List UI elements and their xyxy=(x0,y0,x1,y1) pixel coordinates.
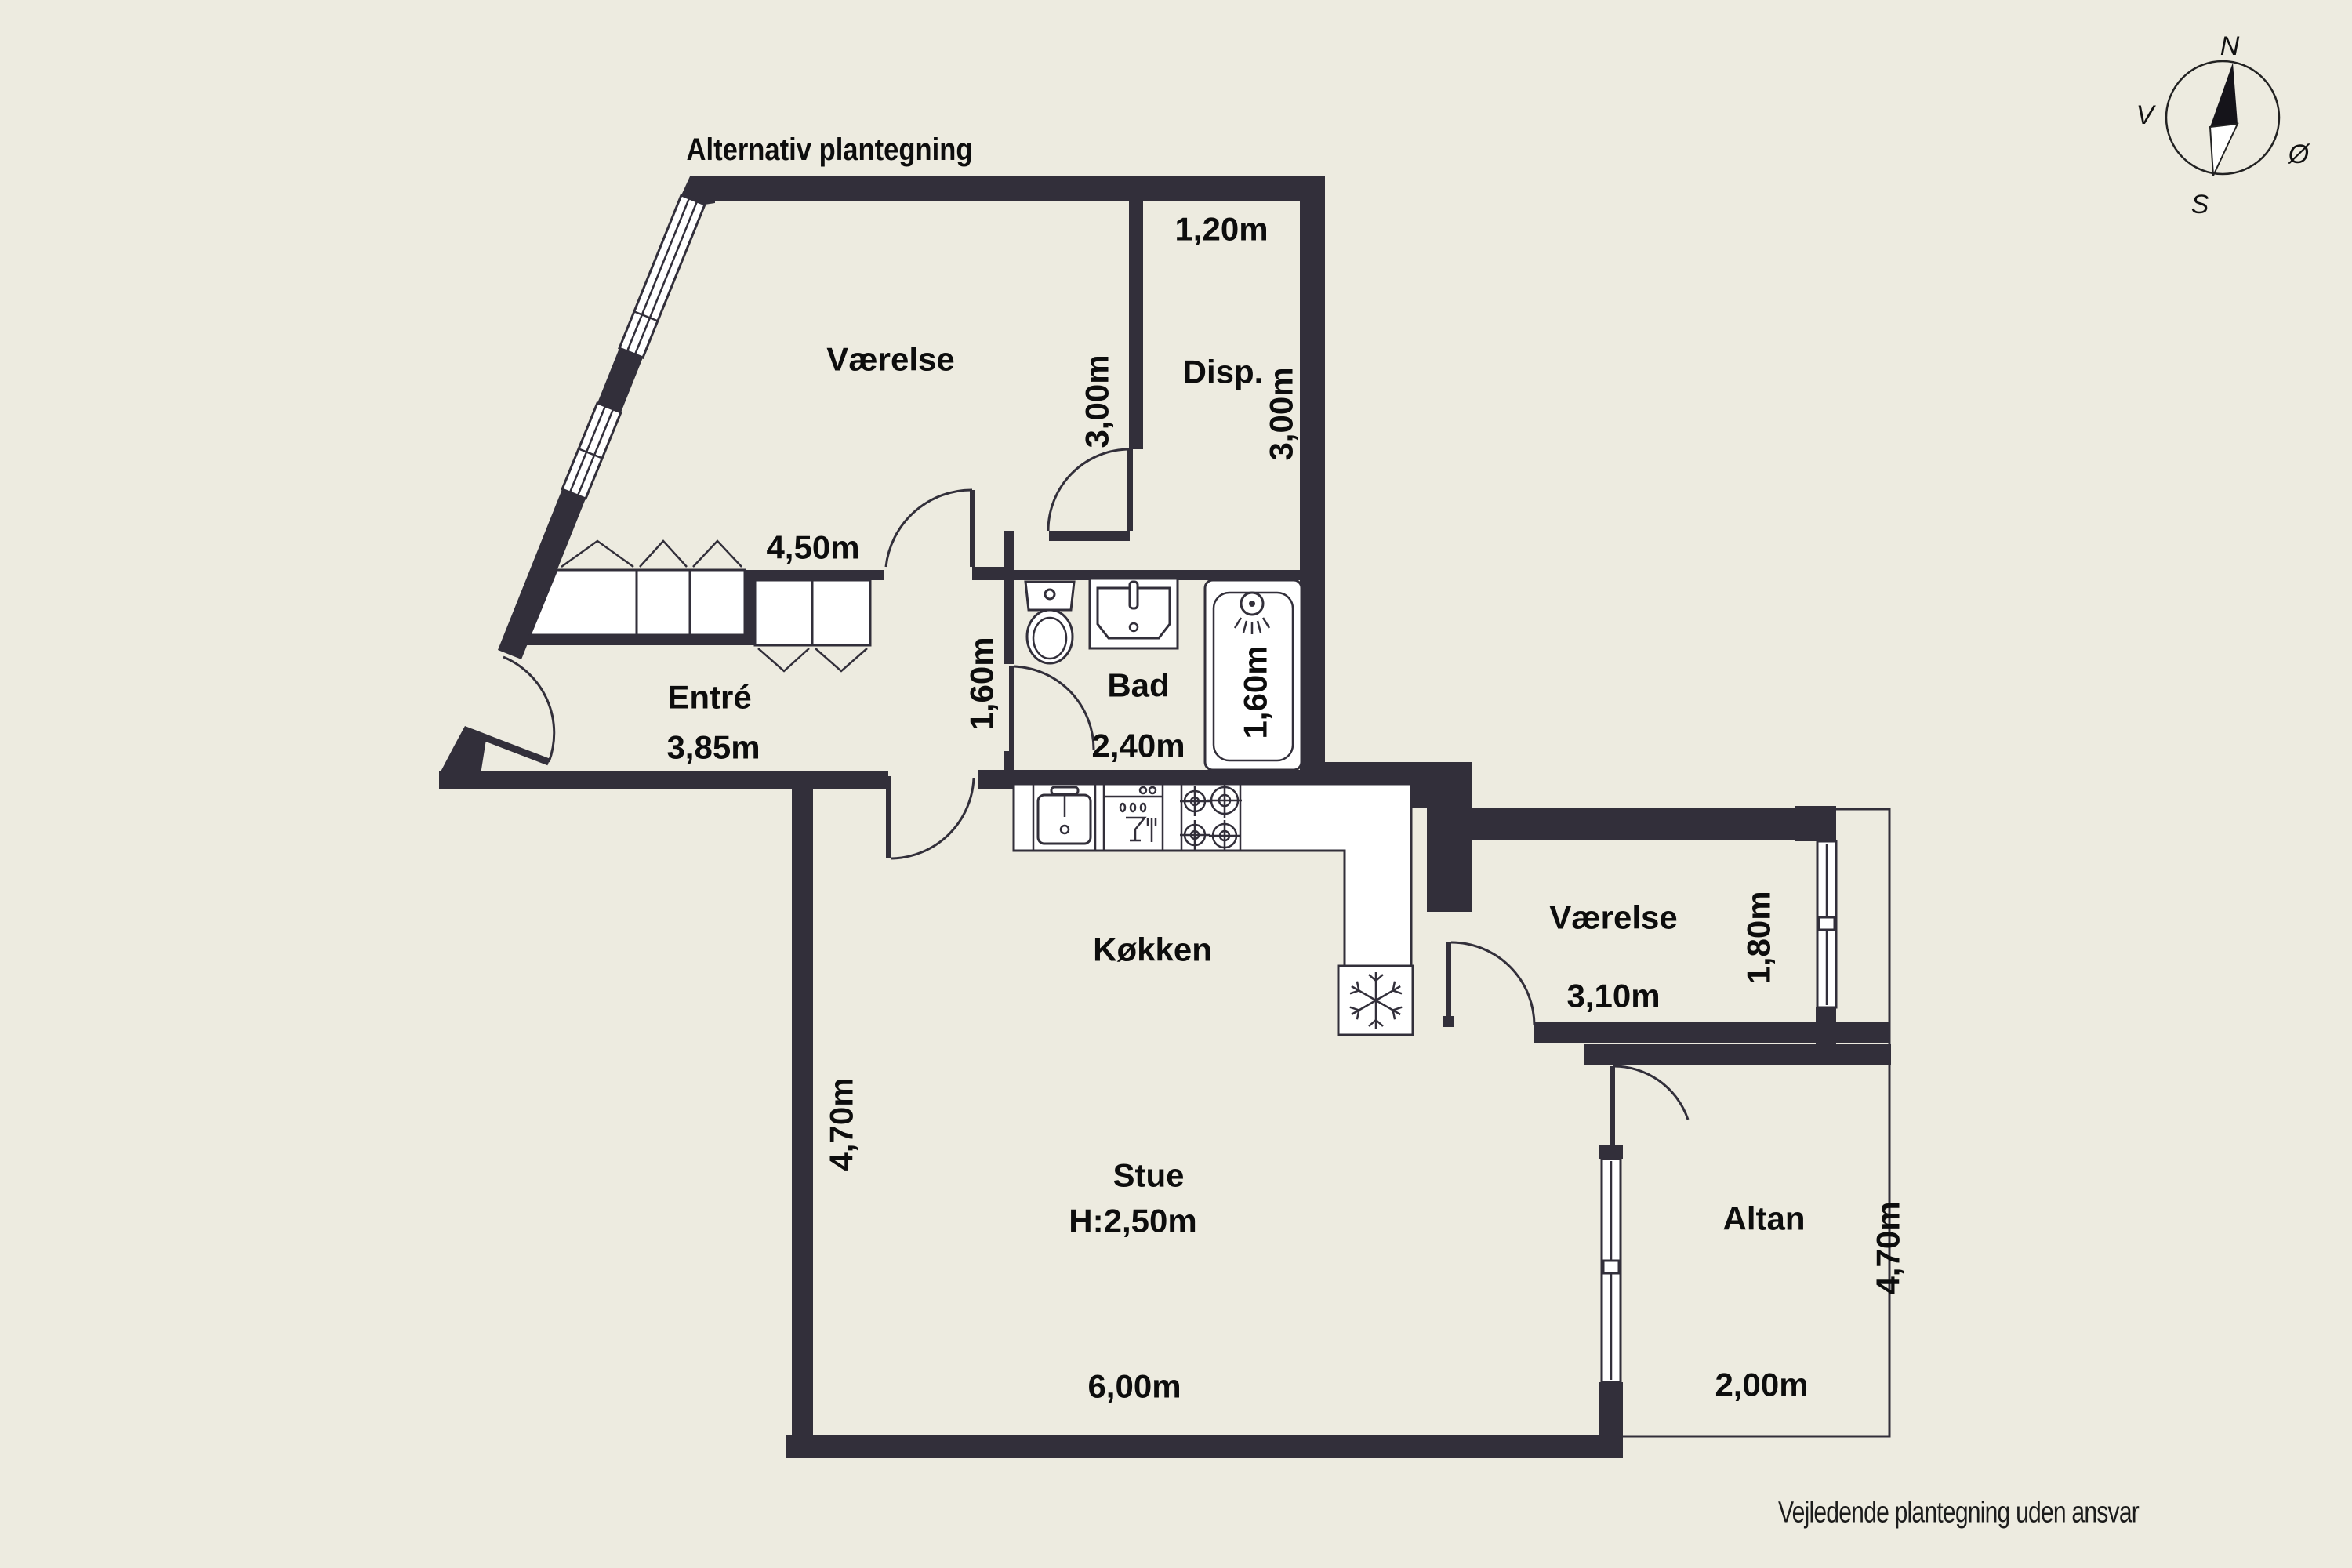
hall-wardrobes xyxy=(755,580,870,671)
bath-sink-icon xyxy=(1090,579,1178,648)
storage-name: Disp. xyxy=(1183,354,1264,390)
living-depth: 4,70m xyxy=(823,1077,860,1171)
compass-east-label: Ø xyxy=(2288,140,2311,169)
balcony-name: Altan xyxy=(1723,1200,1806,1237)
compass-south-label: S xyxy=(2191,190,2209,220)
balcony-width: 2,00m xyxy=(1715,1367,1808,1403)
compass-north-label: N xyxy=(2220,31,2240,61)
living-width: 6,00m xyxy=(1087,1368,1181,1405)
balcony-depth: 4,70m xyxy=(1870,1201,1907,1294)
bedroom-top-width: 4,50m xyxy=(766,529,859,566)
floor-plan-page: N S V Ø Alternativ plantegning Værelse 4… xyxy=(0,0,2352,1568)
bedroom-right-window-width: 1,80m xyxy=(1740,891,1777,984)
living-ceiling-height: H:2,50m xyxy=(1069,1203,1196,1240)
bath-width: 2,40m xyxy=(1091,728,1185,764)
bedroom-top-window-wall xyxy=(562,195,705,499)
floor-plan-drawing: N S V Ø Alternativ plantegning Værelse 4… xyxy=(0,0,2352,1568)
bedroom-top-door xyxy=(886,490,975,567)
storage-door xyxy=(1048,449,1133,531)
kitchen-sink-icon xyxy=(1033,784,1095,851)
bedroom-right-window xyxy=(1817,841,1836,1007)
fridge-icon xyxy=(1338,966,1413,1035)
storage-depth: 3,00m xyxy=(1263,367,1300,460)
hall-name: Entré xyxy=(667,679,751,716)
bath-name: Bad xyxy=(1107,667,1169,704)
hall-width: 3,85m xyxy=(666,729,760,766)
bedroom-top-depth: 3,00m xyxy=(1079,354,1116,448)
bath-door xyxy=(1009,666,1094,751)
bath-tub-length: 1,60m xyxy=(1237,645,1274,739)
hall-passage-width: 1,60m xyxy=(964,637,1000,730)
bedroom-right-name: Værelse xyxy=(1549,899,1677,936)
balcony-door xyxy=(1610,1066,1688,1145)
bedroom-right-door xyxy=(1446,942,1534,1025)
compass-needle-north xyxy=(2210,63,2238,127)
toilet-icon xyxy=(1025,582,1074,663)
compass-rose: N S V Ø xyxy=(2136,31,2311,220)
bedroom-top-name: Værelse xyxy=(826,341,954,378)
disclaimer-text: Vejledende plantegning uden ansvar xyxy=(1778,1496,2140,1529)
living-room-window xyxy=(1602,1159,1621,1382)
compass-west-label: V xyxy=(2136,100,2157,130)
storage-width: 1,20m xyxy=(1174,211,1268,248)
compass-needle-south xyxy=(2210,124,2238,176)
kitchen-name: Køkken xyxy=(1093,931,1212,968)
living-name: Stue xyxy=(1112,1157,1184,1194)
kitchen-door xyxy=(886,776,974,858)
bedroom-right-width: 3,10m xyxy=(1566,978,1660,1014)
page-title: Alternativ plantegning xyxy=(687,132,973,167)
